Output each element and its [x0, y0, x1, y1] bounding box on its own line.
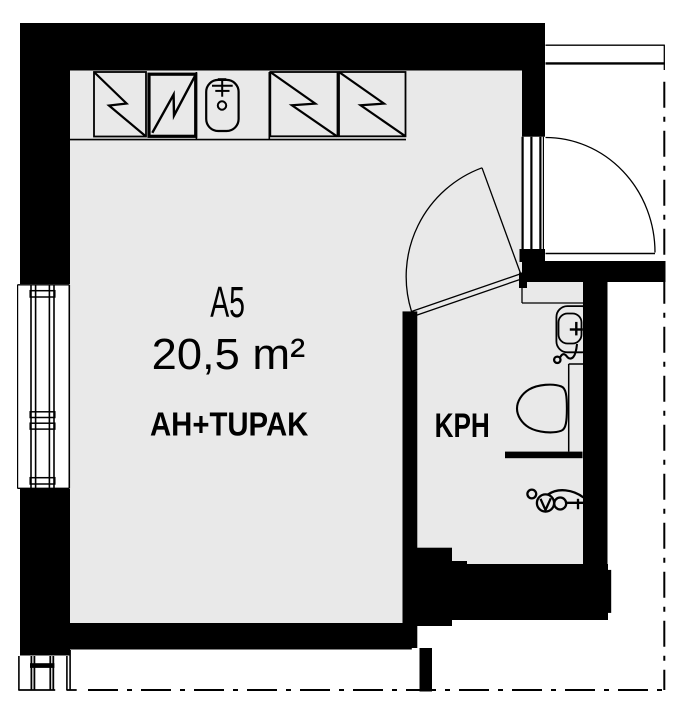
svg-text:KPH: KPH: [435, 407, 490, 445]
svg-text:A5: A5: [210, 278, 245, 327]
svg-text:20,5 m²: 20,5 m²: [152, 330, 306, 379]
svg-text:AH+TUPAK: AH+TUPAK: [150, 406, 308, 443]
